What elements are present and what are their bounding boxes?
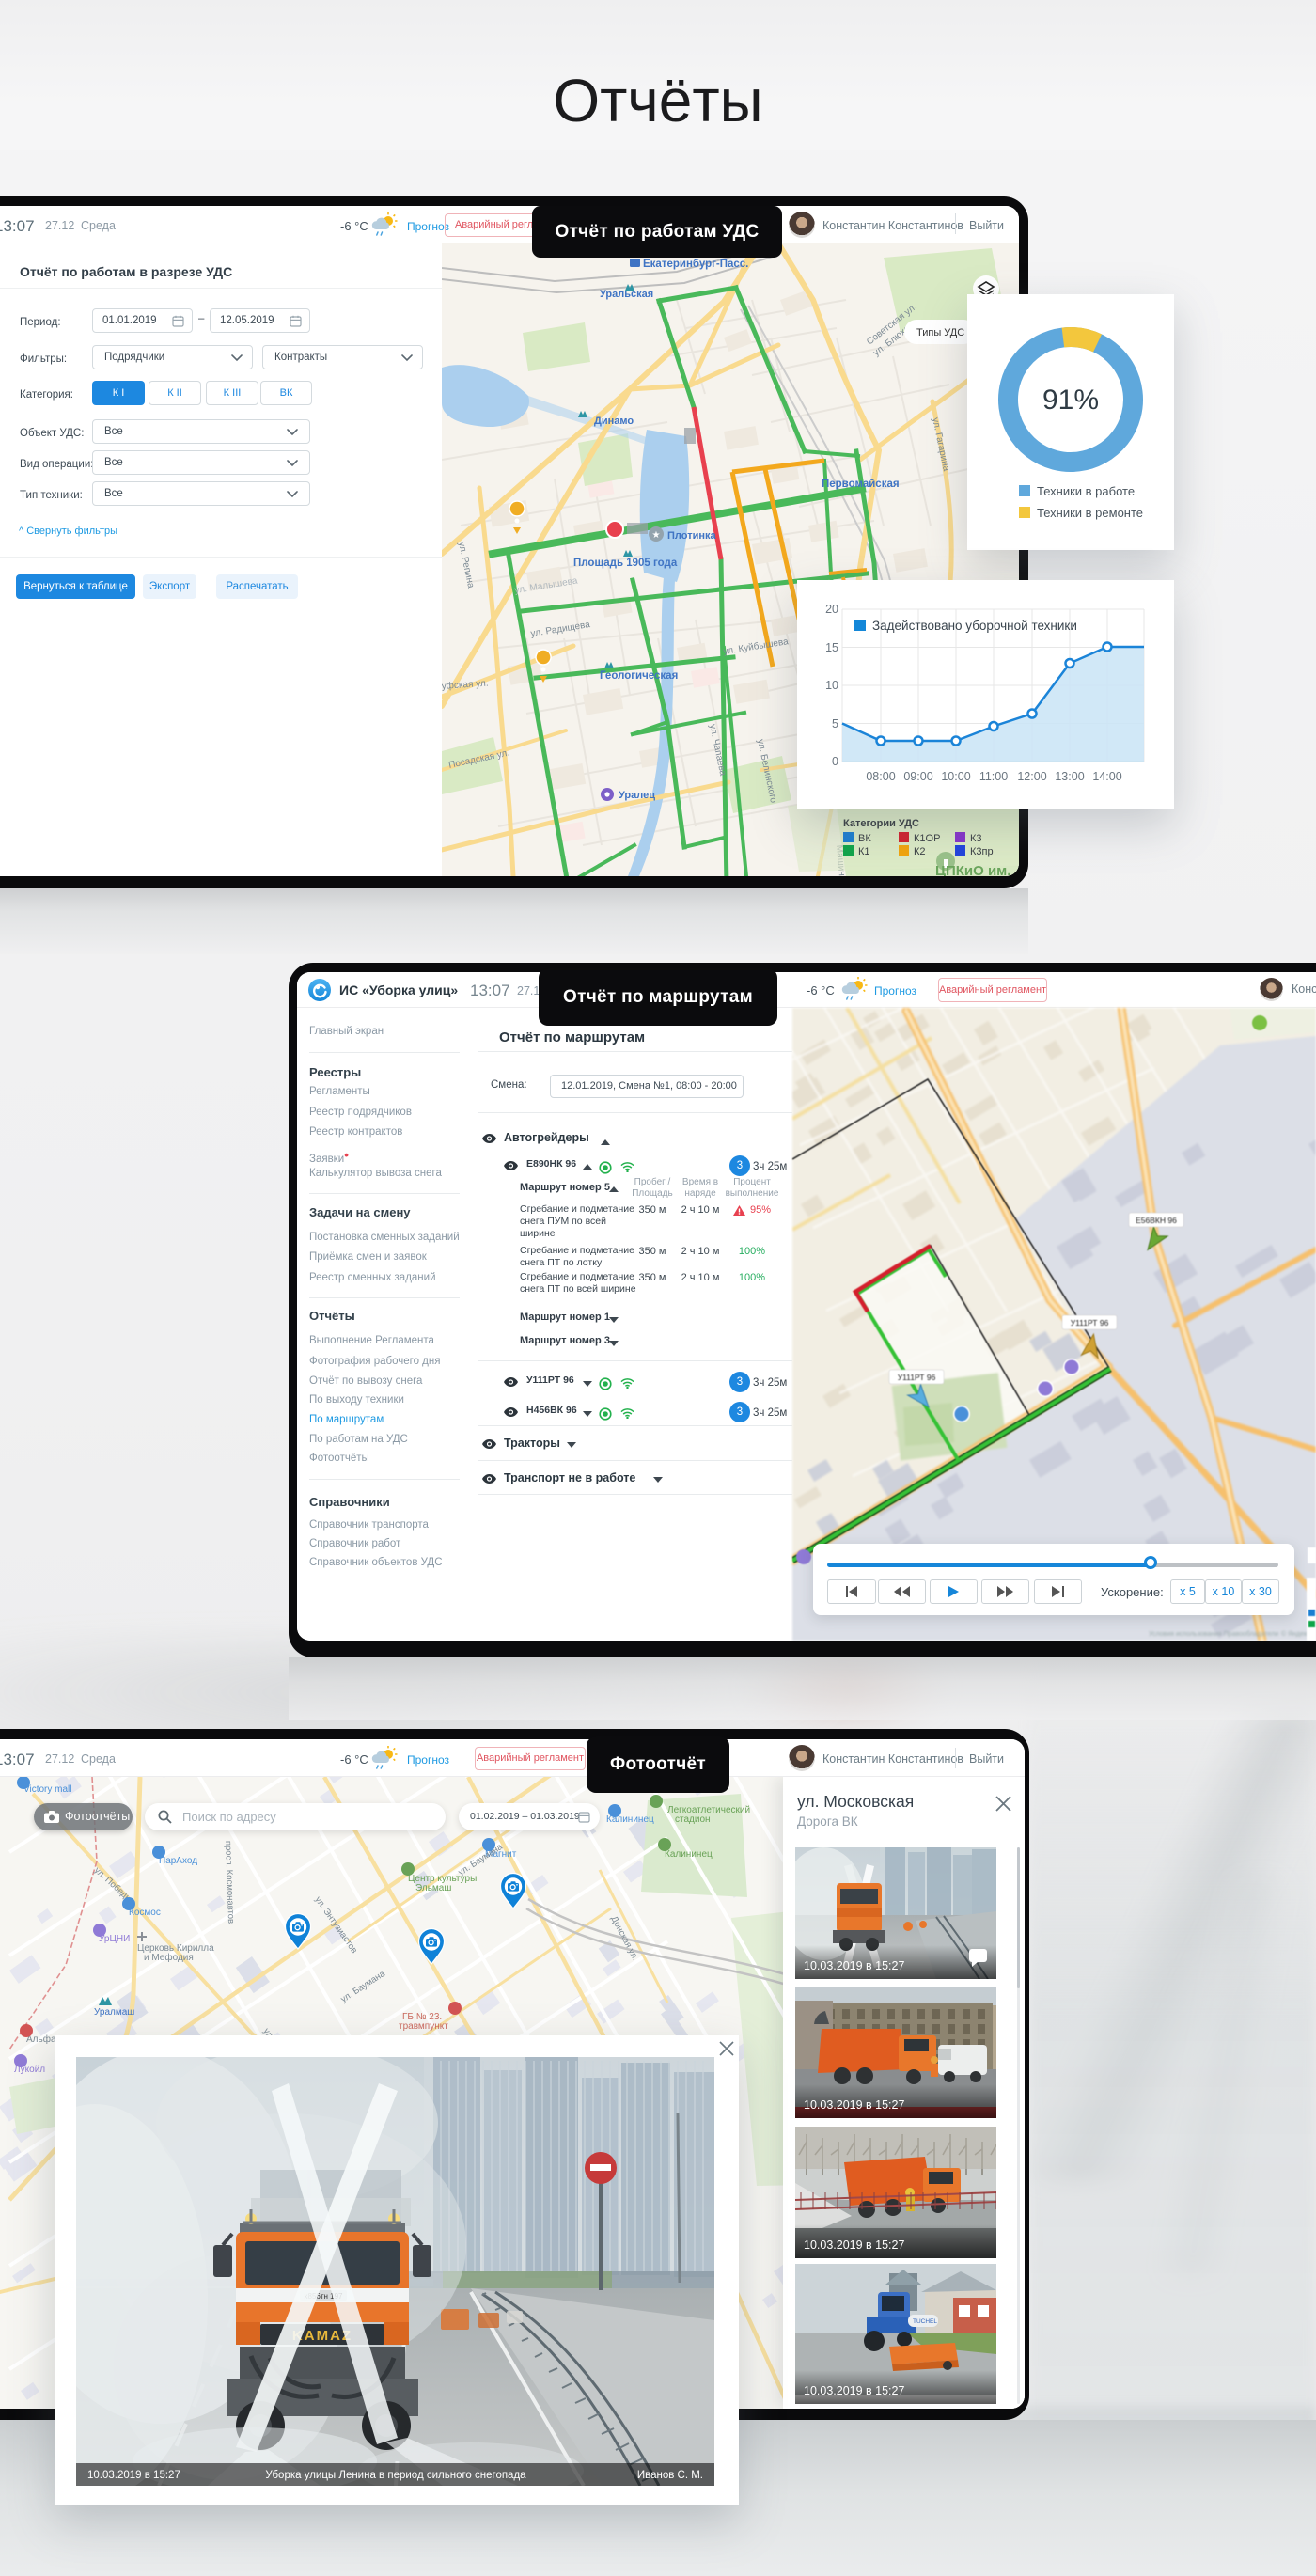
svg-text:Первомайская: Первомайская (822, 479, 900, 490)
svg-text:Уралец: Уралец (619, 790, 655, 801)
svg-text:травмпункт: травмпункт (399, 2021, 448, 2032)
svg-text:Космос: Космос (129, 1908, 161, 1918)
svg-text:15: 15 (825, 641, 838, 654)
svg-text:Уборка улицы Ленина в период с: Уборка улицы Ленина в период сильного сн… (265, 2470, 526, 2481)
svg-text:У111РТ 96: У111РТ 96 (898, 1373, 936, 1382)
svg-text:10.03.2019 в 15:27: 10.03.2019 в 15:27 (804, 2098, 904, 2112)
svg-text:ПарАход: ПарАход (159, 1856, 197, 1866)
svg-text:К2: К2 (914, 846, 926, 857)
svg-text:Динамо: Динамо (594, 416, 634, 427)
svg-text:Техники в работе: Техники в работе (1037, 484, 1135, 498)
svg-text:91%: 91% (1042, 385, 1099, 416)
svg-text:Калининец: Калининец (665, 1849, 713, 1860)
svg-text:Категории УДС: Категории УДС (843, 818, 919, 829)
svg-text:Задействовано уборочной техник: Задействовано уборочной техники (872, 619, 1077, 633)
svg-text:ВК: ВК (858, 833, 871, 844)
svg-text:09:00: 09:00 (903, 770, 932, 783)
svg-text:10.03.2019 в 15:27: 10.03.2019 в 15:27 (804, 1959, 904, 1972)
svg-text:Типы УДС: Типы УДС (916, 327, 964, 338)
svg-text:Геологическая: Геологическая (600, 670, 678, 682)
svg-text:12:00: 12:00 (1017, 770, 1046, 783)
svg-text:У111РТ 96: У111РТ 96 (1071, 1318, 1109, 1327)
svg-text:Е56ВКН 96: Е56ВКН 96 (1136, 1216, 1177, 1225)
svg-text:0: 0 (832, 755, 838, 768)
svg-text:К1: К1 (858, 846, 870, 857)
svg-text:10.03.2019 в 15:27: 10.03.2019 в 15:27 (87, 2470, 180, 2481)
svg-text:стадион: стадион (675, 1814, 711, 1825)
svg-text:TUCHEL: TUCHEL (913, 2318, 937, 2325)
svg-text:Площадь 1905 года: Площадь 1905 года (573, 558, 678, 569)
svg-text:К1ОР: К1ОР (914, 833, 940, 844)
svg-text:08:00: 08:00 (866, 770, 895, 783)
svg-text:Техники в ремонте: Техники в ремонте (1037, 506, 1143, 520)
svg-text:11:00: 11:00 (979, 770, 1008, 783)
svg-text:10:00: 10:00 (941, 770, 970, 783)
svg-text:★: ★ (652, 530, 661, 541)
svg-text:10.03.2019 в 15:27: 10.03.2019 в 15:27 (804, 2238, 904, 2252)
svg-text:10: 10 (825, 679, 838, 692)
svg-text:Victory mall: Victory mall (23, 1784, 72, 1795)
svg-text:5: 5 (832, 717, 838, 730)
svg-text:ЦПКиО им.: ЦПКиО им. (935, 863, 1010, 876)
svg-text:Уралмаш: Уралмаш (94, 2007, 134, 2018)
svg-text:К3пр: К3пр (970, 846, 994, 857)
svg-text:Екатеринбург-Пасс.: Екатеринбург-Пасс. (643, 259, 748, 270)
svg-text:Иванов С. М.: Иванов С. М. (637, 2470, 703, 2481)
svg-text:Эльмаш: Эльмаш (415, 1883, 451, 1893)
svg-text:13:00: 13:00 (1055, 770, 1084, 783)
svg-text:14:00: 14:00 (1092, 770, 1121, 783)
svg-text:Плотинка: Плотинка (667, 530, 716, 542)
svg-text:20: 20 (825, 603, 838, 616)
svg-text:К3: К3 (970, 833, 982, 844)
svg-text:10.03.2019 в 15:27: 10.03.2019 в 15:27 (804, 2384, 904, 2397)
svg-text:и Мефодия: и Мефодия (144, 1952, 194, 1963)
